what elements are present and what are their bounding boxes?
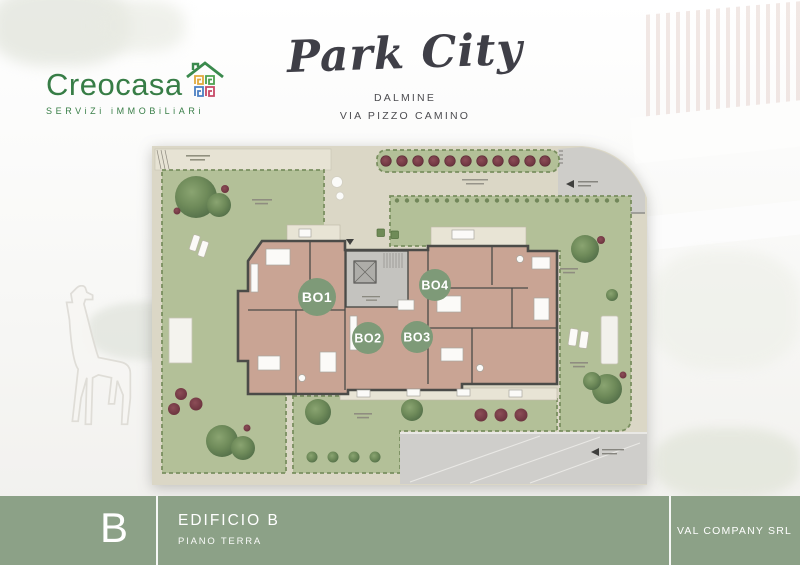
pergola: [169, 318, 192, 363]
unit-label-bo2: BO2: [354, 332, 381, 346]
footer-divider: [156, 496, 158, 565]
stair-core: [346, 251, 408, 307]
unit-label-bo1: BO1: [302, 289, 332, 305]
sidewalk-strip: [155, 149, 331, 170]
paved-area-bottom-right: [400, 432, 647, 484]
building-edificio-b: [238, 241, 557, 394]
building-letter: B: [92, 504, 136, 552]
pool: [601, 316, 618, 364]
footer-bar: B EDIFICIO B PIANO TERRA VAL COMPANY SRL: [0, 496, 800, 565]
unit-label-bo4: BO4: [421, 279, 448, 293]
unit-label-bo3: BO3: [403, 331, 430, 345]
company-name: VAL COMPANY SRL: [669, 525, 800, 537]
bush-row: [395, 198, 619, 202]
building-name: EDIFICIO B: [178, 512, 280, 530]
site-plan: BO1 BO2 BO3 BO4: [0, 0, 800, 565]
building-floor: PIANO TERRA: [178, 536, 262, 547]
